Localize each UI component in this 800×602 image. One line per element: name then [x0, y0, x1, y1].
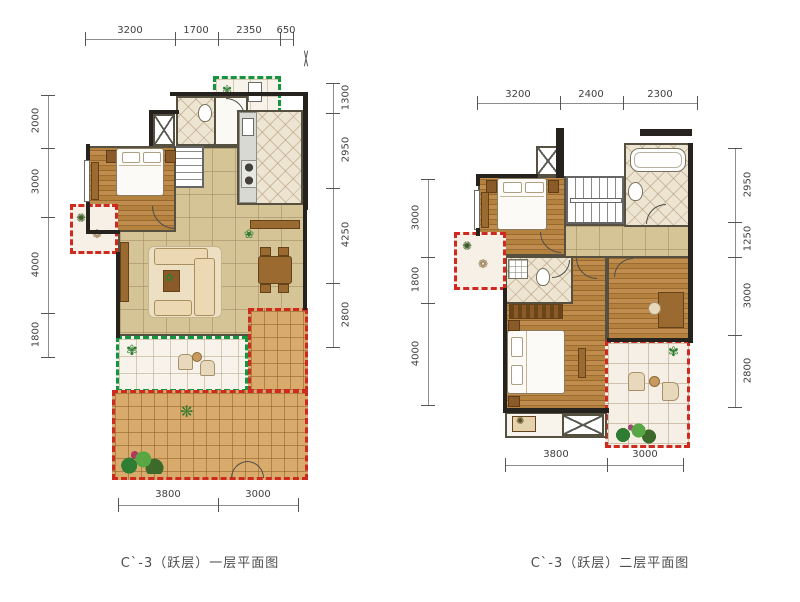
- dim-tick: [421, 405, 435, 406]
- floor-plan-canvas: ❀ ✿ ✾: [0, 0, 800, 602]
- plan-title-second-floor: C`-3（跃层）二层平面图: [500, 552, 720, 571]
- dim-value: 2400: [569, 89, 613, 100]
- nightstand: [508, 320, 520, 331]
- wall: [688, 143, 693, 343]
- dim-value: 1250: [743, 217, 754, 261]
- nightstand: [548, 180, 559, 193]
- bathtub-icon: [630, 148, 686, 172]
- dim-line: [735, 148, 736, 407]
- dim-tick: [477, 96, 478, 110]
- bench: [578, 348, 586, 378]
- bed-icon: [507, 330, 565, 394]
- dim-value: 3000: [623, 449, 667, 460]
- dim-value: 3000: [743, 274, 754, 318]
- shower-icon: [508, 259, 528, 279]
- dim-value: 1800: [411, 258, 422, 302]
- dim-tick: [697, 96, 698, 110]
- wardrobe: [509, 304, 563, 319]
- dim-tick: [560, 96, 561, 110]
- stair-rail: [570, 198, 622, 203]
- toilet-icon: [628, 182, 643, 201]
- balcony-chair: [662, 382, 679, 401]
- dim-line: [477, 103, 697, 104]
- wall: [476, 174, 538, 178]
- dim-tick: [728, 148, 742, 149]
- dim-value: 2800: [743, 349, 754, 393]
- dim-line: [428, 179, 429, 405]
- window-x: [562, 414, 604, 436]
- dim-tick: [421, 303, 435, 304]
- balcony-table: [649, 376, 660, 387]
- balcony-chair: [628, 372, 645, 391]
- plant-icon: ❁: [478, 258, 488, 270]
- wall: [503, 288, 507, 412]
- dim-tick: [728, 335, 742, 336]
- dim-tick: [421, 179, 435, 180]
- garden-plants: [610, 414, 662, 444]
- dim-value: 4000: [411, 332, 422, 376]
- dim-tick: [683, 458, 684, 472]
- dim-tick: [728, 257, 742, 258]
- dim-tick: [728, 407, 742, 408]
- dim-value: 3800: [534, 449, 578, 460]
- dim-tick: [607, 458, 608, 472]
- wall: [503, 408, 609, 413]
- wardrobe: [481, 192, 489, 228]
- window: [474, 190, 480, 230]
- wall: [556, 128, 564, 178]
- wall: [476, 228, 480, 236]
- dim-tick: [421, 257, 435, 258]
- bed-icon: [497, 178, 547, 230]
- dim-tick: [505, 458, 506, 472]
- wall: [476, 174, 480, 186]
- wall: [640, 129, 692, 136]
- dim-tick: [623, 96, 624, 110]
- dim-value: 2300: [638, 89, 682, 100]
- dim-line: [505, 465, 683, 466]
- dim-value: 2950: [743, 163, 754, 207]
- wall: [607, 338, 692, 342]
- plan-second-floor: ✺ ❁ ✾ ✺ 3200 2400 2300: [0, 0, 800, 602]
- nightstand: [508, 396, 520, 407]
- plant-icon: ✺: [462, 240, 472, 252]
- toilet-icon: [536, 268, 550, 286]
- dim-value: 3000: [411, 196, 422, 240]
- desk: [658, 292, 684, 328]
- plant-icon: ✾: [668, 346, 679, 359]
- desk-chair: [648, 302, 661, 315]
- plant-icon: ✺: [516, 417, 524, 427]
- dim-value: 3200: [496, 89, 540, 100]
- dim-tick: [728, 222, 742, 223]
